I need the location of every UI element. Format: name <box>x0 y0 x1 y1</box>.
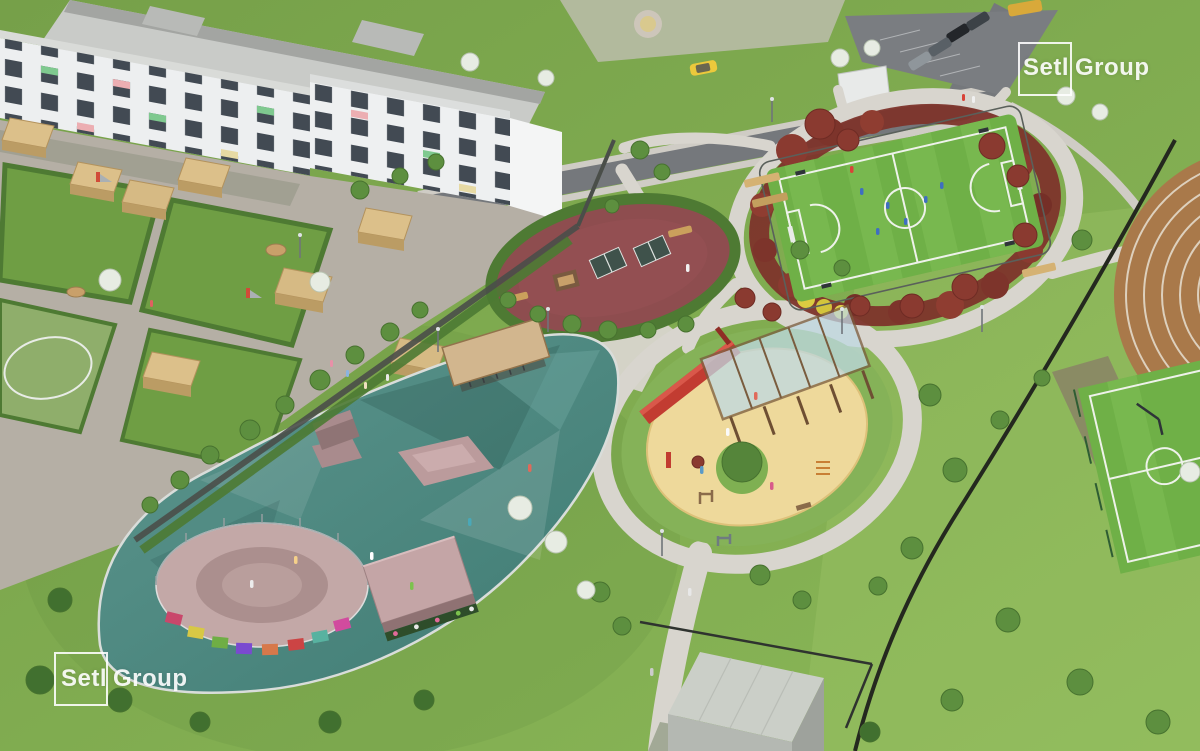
setlgroup-logo-bottom-left: SetlGroup <box>52 650 202 706</box>
logo-text-group: Group <box>113 665 188 693</box>
logo-text-group: Group <box>1075 54 1150 82</box>
setlgroup-logo-top-right: SetlGroup <box>1016 40 1166 96</box>
logo-wordmark: SetlGroup <box>61 665 188 693</box>
logo-text-setl: Setl <box>61 665 107 693</box>
aerial-render-stage: SetlGroup SetlGroup <box>0 0 1200 751</box>
logo-text-setl: Setl <box>1023 54 1069 82</box>
logo-wordmark: SetlGroup <box>1023 54 1150 82</box>
aerial-render <box>0 0 1200 751</box>
